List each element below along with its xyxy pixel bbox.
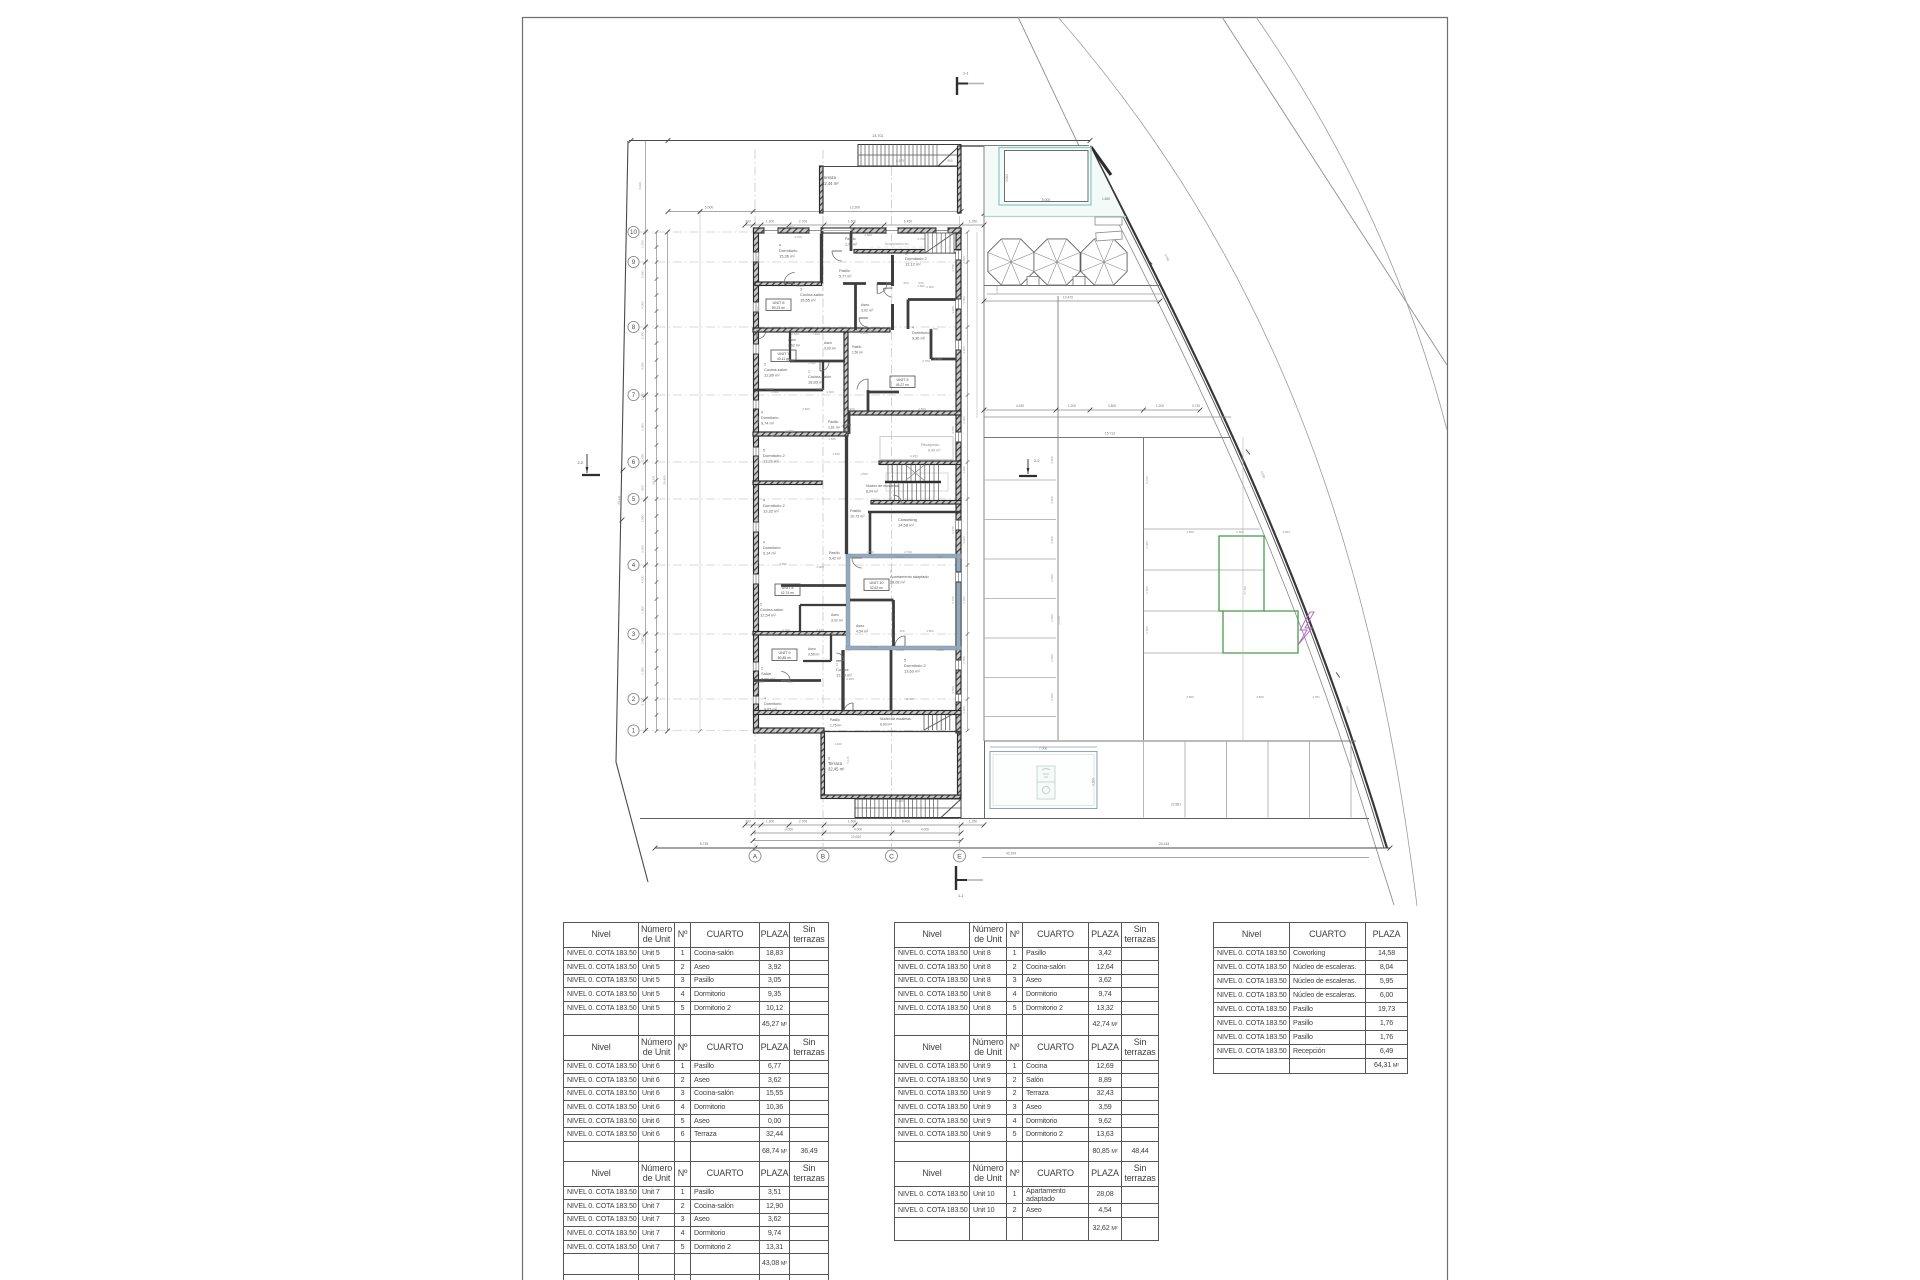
svg-text:13,63 m²: 13,63 m²	[904, 669, 920, 674]
svg-text:Aseo: Aseo	[831, 613, 839, 617]
svg-text:2-2: 2-2	[1034, 459, 1040, 463]
svg-text:4.250: 4.250	[778, 481, 786, 485]
svg-text:10,73 m²: 10,73 m²	[850, 515, 865, 519]
svg-text:4.000: 4.000	[785, 828, 793, 832]
svg-text:1.600: 1.600	[864, 233, 872, 237]
svg-text:1.600: 1.600	[641, 606, 645, 614]
svg-text:3.000: 3.000	[951, 306, 955, 314]
svg-text:1.300: 1.300	[766, 820, 774, 824]
svg-text:2.340: 2.340	[870, 645, 878, 649]
svg-text:2: 2	[761, 667, 763, 671]
svg-text:2.800: 2.800	[936, 413, 944, 417]
svg-text:29.241: 29.241	[652, 475, 656, 485]
svg-text:1.000: 1.000	[816, 565, 824, 569]
svg-text:6.450: 6.450	[904, 220, 912, 224]
svg-text:1,75 m²: 1,75 m²	[830, 724, 842, 728]
svg-text:4.000: 4.000	[962, 256, 966, 264]
svg-text:29.241: 29.241	[617, 495, 621, 505]
svg-text:3.300: 3.300	[641, 392, 645, 400]
svg-text:1-1: 1-1	[963, 72, 969, 76]
svg-text:2.500: 2.500	[1050, 536, 1054, 544]
svg-text:1.300: 1.300	[641, 667, 645, 675]
svg-text:1.300: 1.300	[766, 220, 774, 224]
svg-text:2: 2	[760, 603, 762, 607]
svg-text:2.500: 2.500	[1050, 574, 1054, 582]
svg-text:4: 4	[761, 411, 763, 415]
svg-text:3.850: 3.850	[846, 677, 854, 681]
svg-text:1.500: 1.500	[995, 286, 999, 294]
svg-text:Salón: Salón	[761, 671, 771, 676]
svg-text:8,04 m²: 8,04 m²	[866, 490, 879, 494]
svg-text:1.600: 1.600	[848, 820, 856, 824]
svg-text:5.000: 5.000	[1042, 198, 1051, 202]
svg-text:1.600: 1.600	[756, 556, 760, 564]
svg-text:Pasillo: Pasillo	[839, 269, 850, 273]
svg-text:1,50 m²: 1,50 m²	[852, 351, 863, 355]
svg-text:Dormitorio 2: Dormitorio 2	[904, 663, 927, 668]
svg-text:59,23 m²: 59,23 m²	[772, 306, 786, 310]
svg-text:Pasillo: Pasillo	[830, 718, 840, 722]
svg-text:9,14 m²: 9,14 m²	[763, 552, 777, 556]
svg-text:2.500: 2.500	[1050, 496, 1054, 504]
svg-text:1.400: 1.400	[856, 713, 864, 717]
svg-text:4.250: 4.250	[771, 434, 779, 438]
svg-text:3,62 m²: 3,62 m²	[788, 344, 801, 348]
svg-text:12.300: 12.300	[850, 206, 860, 210]
svg-text:27.601: 27.601	[1243, 585, 1247, 595]
svg-text:2.750: 2.750	[934, 357, 942, 361]
svg-text:900: 900	[937, 555, 942, 559]
svg-text:900: 900	[849, 407, 854, 411]
svg-text:2.500: 2.500	[1050, 456, 1054, 464]
svg-text:Dormitorio: Dormitorio	[764, 702, 782, 706]
svg-text:500: 500	[641, 485, 645, 490]
svg-text:Dormitorio: Dormitorio	[912, 331, 930, 335]
svg-text:1.600: 1.600	[962, 466, 966, 474]
svg-text:5,42 m²: 5,42 m²	[829, 557, 842, 561]
svg-text:1.250: 1.250	[969, 820, 977, 824]
svg-text:2-2: 2-2	[578, 461, 584, 465]
svg-text:7.500: 7.500	[756, 306, 760, 314]
svg-text:4: 4	[779, 244, 781, 248]
svg-text:12.000: 12.000	[851, 835, 861, 839]
svg-text:Pasillo: Pasillo	[852, 345, 862, 349]
svg-text:2.300: 2.300	[860, 331, 868, 335]
svg-text:1.850: 1.850	[641, 636, 645, 644]
svg-text:UNIT 6: UNIT 6	[773, 301, 785, 305]
svg-text:1.600: 1.600	[641, 453, 645, 461]
svg-text:12,80 m²: 12,80 m²	[764, 373, 780, 378]
svg-text:3,02 m²: 3,02 m²	[861, 309, 874, 313]
svg-text:1.565: 1.565	[832, 452, 840, 456]
svg-text:2.700: 2.700	[782, 628, 790, 632]
svg-text:Acumulación en...: Acumulación en...	[885, 242, 911, 246]
svg-text:3,59 m²: 3,59 m²	[808, 653, 820, 657]
svg-text:29.400: 29.400	[663, 475, 667, 485]
svg-text:5.000: 5.000	[705, 206, 714, 210]
svg-text:2.300: 2.300	[756, 516, 760, 524]
svg-text:9,74 m²: 9,74 m²	[761, 422, 775, 426]
svg-text:Aseo: Aseo	[808, 647, 816, 651]
svg-text:5: 5	[632, 496, 636, 503]
svg-text:3,03 m²: 3,03 m²	[824, 347, 837, 351]
svg-text:4.000: 4.000	[962, 656, 966, 664]
svg-text:42.154: 42.154	[1006, 852, 1016, 856]
svg-text:1-1: 1-1	[958, 894, 964, 898]
svg-text:Dormitorio 2: Dormitorio 2	[763, 453, 786, 458]
svg-text:2.800: 2.800	[918, 407, 926, 411]
svg-text:9,36 m²: 9,36 m²	[912, 337, 926, 341]
svg-text:Dormitorio 2: Dormitorio 2	[905, 256, 928, 261]
svg-text:2.750: 2.750	[922, 359, 930, 363]
svg-text:2.700: 2.700	[766, 632, 774, 636]
svg-text:4: 4	[632, 562, 636, 569]
svg-text:300: 300	[745, 220, 751, 224]
svg-text:Pasillo: Pasillo	[829, 551, 840, 555]
svg-text:22.601: 22.601	[1057, 615, 1061, 625]
svg-text:32,45 m²: 32,45 m²	[828, 767, 845, 772]
svg-text:2.700: 2.700	[799, 820, 807, 824]
svg-text:14,58 m²: 14,58 m²	[898, 523, 914, 528]
svg-text:9: 9	[632, 259, 636, 266]
svg-text:1.868: 1.868	[1102, 197, 1110, 201]
svg-text:6.300: 6.300	[896, 555, 904, 559]
svg-text:Dormitorio: Dormitorio	[763, 546, 781, 550]
svg-text:100: 100	[852, 329, 857, 333]
svg-text:1.700: 1.700	[641, 240, 645, 248]
svg-text:3.300: 3.300	[962, 596, 966, 604]
svg-text:7.450: 7.450	[812, 332, 820, 336]
svg-text:2.550: 2.550	[779, 562, 787, 566]
svg-text:6,00 m²: 6,00 m²	[880, 723, 892, 727]
svg-text:Núcleo de escaleras.: Núcleo de escaleras.	[880, 717, 912, 721]
svg-text:2.300: 2.300	[641, 423, 645, 431]
svg-text:12,54 m²: 12,54 m²	[760, 613, 776, 618]
svg-text:Aseo: Aseo	[788, 338, 796, 342]
svg-text:2.300: 2.300	[756, 686, 760, 694]
svg-text:5.145: 5.145	[846, 756, 850, 764]
svg-text:1.600: 1.600	[962, 296, 966, 304]
svg-text:Cocina-salón: Cocina-salón	[764, 367, 787, 372]
svg-text:13,31 m²: 13,31 m²	[763, 459, 779, 464]
svg-text:3.700: 3.700	[752, 727, 760, 731]
svg-text:3.850: 3.850	[926, 629, 934, 633]
svg-text:32,62 m²: 32,62 m²	[870, 586, 884, 590]
svg-text:80,85 m²: 80,85 m²	[778, 656, 792, 660]
svg-text:4.500: 4.500	[1186, 530, 1194, 534]
svg-text:5.330: 5.330	[1145, 476, 1149, 484]
svg-text:2.600: 2.600	[896, 413, 904, 417]
svg-text:2.900: 2.900	[926, 285, 934, 289]
svg-text:C: C	[889, 853, 894, 860]
svg-text:100: 100	[899, 629, 904, 633]
svg-text:1.054: 1.054	[1282, 530, 1290, 534]
svg-text:13,32 m²: 13,32 m²	[763, 509, 779, 514]
svg-text:8: 8	[632, 324, 636, 331]
svg-text:1.781: 1.781	[1312, 695, 1320, 699]
svg-text:UNIT 7: UNIT 7	[778, 352, 790, 356]
svg-text:32,44 m²: 32,44 m²	[822, 181, 839, 186]
svg-text:2.300: 2.300	[641, 697, 645, 705]
svg-text:2.500: 2.500	[1145, 626, 1149, 634]
svg-text:Dormitorio: Dormitorio	[779, 248, 798, 253]
svg-text:1,61 m²: 1,61 m²	[828, 426, 841, 430]
svg-text:4: 4	[912, 326, 914, 330]
svg-text:Cocina-salón: Cocina-salón	[800, 292, 823, 297]
svg-text:1.600: 1.600	[962, 706, 966, 714]
svg-text:4.500: 4.500	[1256, 695, 1264, 699]
svg-text:2.700: 2.700	[756, 616, 760, 624]
svg-text:5: 5	[763, 449, 765, 453]
svg-text:1.400: 1.400	[834, 742, 842, 746]
svg-text:1.600: 1.600	[848, 220, 856, 224]
svg-text:Recepción: Recepción	[921, 442, 939, 447]
svg-text:7: 7	[632, 392, 636, 399]
svg-text:1: 1	[808, 370, 810, 374]
svg-text:E: E	[957, 853, 962, 860]
svg-text:10: 10	[630, 229, 637, 236]
svg-text:3.410: 3.410	[896, 648, 904, 652]
svg-text:Cocina: Cocina	[836, 667, 849, 672]
svg-text:3: 3	[632, 631, 636, 638]
svg-text:8.675: 8.675	[896, 159, 904, 163]
svg-text:2.500: 2.500	[1145, 586, 1149, 594]
svg-text:1.250: 1.250	[969, 220, 977, 224]
svg-text:2.900: 2.900	[786, 225, 794, 229]
svg-text:Cocina-salón: Cocina-salón	[760, 607, 783, 612]
svg-text:4.000: 4.000	[962, 536, 966, 544]
svg-text:2.800: 2.800	[796, 284, 804, 288]
svg-text:6: 6	[632, 459, 636, 466]
svg-text:Terraza: Terraza	[828, 761, 843, 766]
svg-text:Dormitorio: Dormitorio	[761, 416, 779, 420]
svg-text:3.300: 3.300	[756, 366, 760, 374]
svg-text:3.740: 3.740	[1192, 404, 1200, 408]
svg-text:3.850: 3.850	[786, 429, 794, 433]
svg-text:4.500: 4.500	[1186, 695, 1194, 699]
svg-text:800: 800	[787, 680, 792, 684]
svg-text:5.150: 5.150	[951, 596, 955, 604]
svg-text:4: 4	[763, 541, 765, 545]
svg-text:3.750: 3.750	[930, 327, 938, 331]
svg-text:2.700: 2.700	[951, 426, 955, 434]
svg-text:1.100: 1.100	[886, 709, 894, 713]
svg-text:1.700: 1.700	[866, 550, 874, 554]
svg-text:3.850: 3.850	[766, 387, 774, 391]
svg-text:12,12 m²: 12,12 m²	[905, 262, 921, 267]
svg-text:A: A	[753, 853, 758, 860]
svg-text:3.500: 3.500	[951, 686, 955, 694]
svg-text:24.143: 24.143	[1159, 842, 1169, 846]
svg-text:1.600: 1.600	[641, 270, 645, 278]
svg-text:1.300: 1.300	[816, 387, 824, 391]
svg-text:2.300: 2.300	[641, 331, 645, 339]
svg-text:4.490: 4.490	[1016, 404, 1024, 408]
svg-text:5: 5	[905, 252, 907, 256]
svg-text:22.881: 22.881	[1171, 803, 1181, 807]
svg-text:2: 2	[764, 363, 766, 367]
svg-text:15.712: 15.712	[1105, 432, 1115, 436]
svg-text:300: 300	[745, 820, 751, 824]
svg-text:Dormitorio 2: Dormitorio 2	[763, 503, 786, 508]
svg-text:1.300: 1.300	[826, 390, 834, 394]
svg-text:1.565: 1.565	[828, 437, 836, 441]
svg-text:8.000: 8.000	[896, 799, 904, 803]
svg-text:Pasillo: Pasillo	[828, 420, 838, 424]
svg-text:2.300: 2.300	[1145, 541, 1149, 549]
svg-text:6.750: 6.750	[796, 327, 804, 331]
svg-text:2.500: 2.500	[1050, 654, 1054, 662]
svg-text:2.550: 2.550	[791, 332, 799, 336]
svg-text:600: 600	[918, 281, 923, 285]
svg-text:1,75 m²: 1,75 m²	[845, 243, 858, 247]
svg-text:2: 2	[828, 757, 830, 761]
svg-text:Aseo: Aseo	[824, 341, 832, 345]
svg-text:Cocina-salón: Cocina-salón	[808, 374, 831, 379]
svg-text:Coworking: Coworking	[898, 517, 917, 522]
svg-text:2.500: 2.500	[808, 361, 816, 365]
svg-text:Núcleo de escaleras.: Núcleo de escaleras.	[866, 484, 900, 488]
svg-text:4.500: 4.500	[1092, 778, 1096, 786]
svg-text:6,49 m²: 6,49 m²	[928, 449, 941, 453]
svg-text:Terraza: Terraza	[822, 175, 837, 180]
svg-text:Pasillo: Pasillo	[850, 509, 861, 513]
svg-text:24.701: 24.701	[873, 134, 884, 138]
svg-text:2.700: 2.700	[756, 256, 760, 264]
svg-text:9,62 m²: 9,62 m²	[764, 708, 778, 712]
svg-text:4.000: 4.000	[641, 575, 645, 583]
svg-text:28,08 m²: 28,08 m²	[890, 581, 906, 585]
svg-text:UNIT 5: UNIT 5	[897, 378, 909, 382]
svg-text:2.100: 2.100	[802, 632, 810, 636]
svg-text:1.600: 1.600	[756, 416, 760, 424]
svg-text:18,83 m²: 18,83 m²	[808, 380, 824, 385]
svg-text:4,54 m²: 4,54 m²	[856, 630, 869, 634]
svg-text:15,36 m²: 15,36 m²	[779, 254, 795, 259]
svg-text:6.400: 6.400	[902, 820, 910, 824]
svg-text:Aseo: Aseo	[856, 624, 864, 628]
svg-text:2.500: 2.500	[786, 358, 794, 362]
svg-text:45,27 m²: 45,27 m²	[896, 383, 910, 387]
svg-text:5.150: 5.150	[951, 526, 955, 534]
svg-text:1.200: 1.200	[1068, 404, 1076, 408]
svg-text:4: 4	[763, 499, 765, 503]
svg-text:UNIT 8: UNIT 8	[782, 586, 794, 590]
svg-text:4.919: 4.919	[638, 182, 642, 190]
svg-text:3.850: 3.850	[936, 648, 944, 652]
svg-text:4: 4	[764, 697, 766, 701]
svg-text:3.750: 3.750	[917, 237, 925, 241]
svg-text:5.715: 5.715	[700, 842, 709, 846]
svg-text:4.000: 4.000	[921, 828, 929, 832]
svg-text:15,55 m²: 15,55 m²	[800, 298, 816, 303]
svg-text:UNIT 10: UNIT 10	[869, 581, 883, 585]
svg-text:B: B	[821, 853, 826, 860]
svg-text:2.600: 2.600	[802, 407, 810, 411]
svg-text:2.500: 2.500	[1050, 614, 1054, 622]
svg-text:10.470: 10.470	[1063, 296, 1073, 300]
svg-text:1: 1	[632, 728, 636, 735]
svg-text:1.600: 1.600	[641, 514, 645, 522]
svg-text:Apartamento adaptado: Apartamento adaptado	[890, 575, 929, 579]
svg-text:5,77 m²: 5,77 m²	[839, 275, 852, 279]
svg-text:Pasillo: Pasillo	[845, 237, 856, 241]
svg-text:3: 3	[800, 288, 802, 292]
svg-text:2.500: 2.500	[1050, 693, 1054, 701]
svg-text:42,74 m²: 42,74 m²	[781, 591, 795, 595]
svg-text:2.300: 2.300	[962, 416, 966, 424]
svg-text:2.100: 2.100	[816, 628, 824, 632]
svg-text:1.450: 1.450	[868, 329, 876, 333]
svg-text:1: 1	[890, 570, 892, 574]
svg-text:Aseo: Aseo	[861, 303, 869, 307]
svg-text:2: 2	[632, 696, 636, 703]
svg-text:3.000: 3.000	[1005, 174, 1009, 182]
svg-text:4.450: 4.450	[910, 455, 918, 459]
svg-text:3.300: 3.300	[756, 456, 760, 464]
svg-text:4.000: 4.000	[854, 828, 862, 832]
svg-text:11.700: 11.700	[906, 697, 915, 701]
svg-text:2.750: 2.750	[951, 264, 955, 272]
svg-text:1.200: 1.200	[1156, 404, 1164, 408]
svg-text:1: 1	[836, 663, 838, 667]
svg-text:750: 750	[885, 281, 890, 285]
svg-text:4.000: 4.000	[962, 346, 966, 354]
svg-text:3.145: 3.145	[823, 766, 827, 774]
svg-text:600: 600	[903, 281, 908, 285]
svg-text:3.700: 3.700	[794, 235, 802, 239]
svg-text:2.700: 2.700	[799, 220, 807, 224]
svg-text:3.800: 3.800	[1108, 404, 1116, 408]
svg-text:4.000: 4.000	[641, 301, 645, 309]
svg-text:UNIT 9: UNIT 9	[779, 651, 791, 655]
svg-text:2.850: 2.850	[756, 680, 764, 684]
svg-text:1.565: 1.565	[860, 472, 868, 476]
svg-text:2.700: 2.700	[904, 550, 912, 554]
svg-text:5: 5	[904, 659, 906, 663]
svg-text:2.000: 2.000	[641, 545, 645, 553]
svg-text:4.000: 4.000	[641, 362, 645, 370]
svg-text:900: 900	[947, 159, 953, 163]
svg-text:3,02 m²: 3,02 m²	[831, 619, 844, 623]
